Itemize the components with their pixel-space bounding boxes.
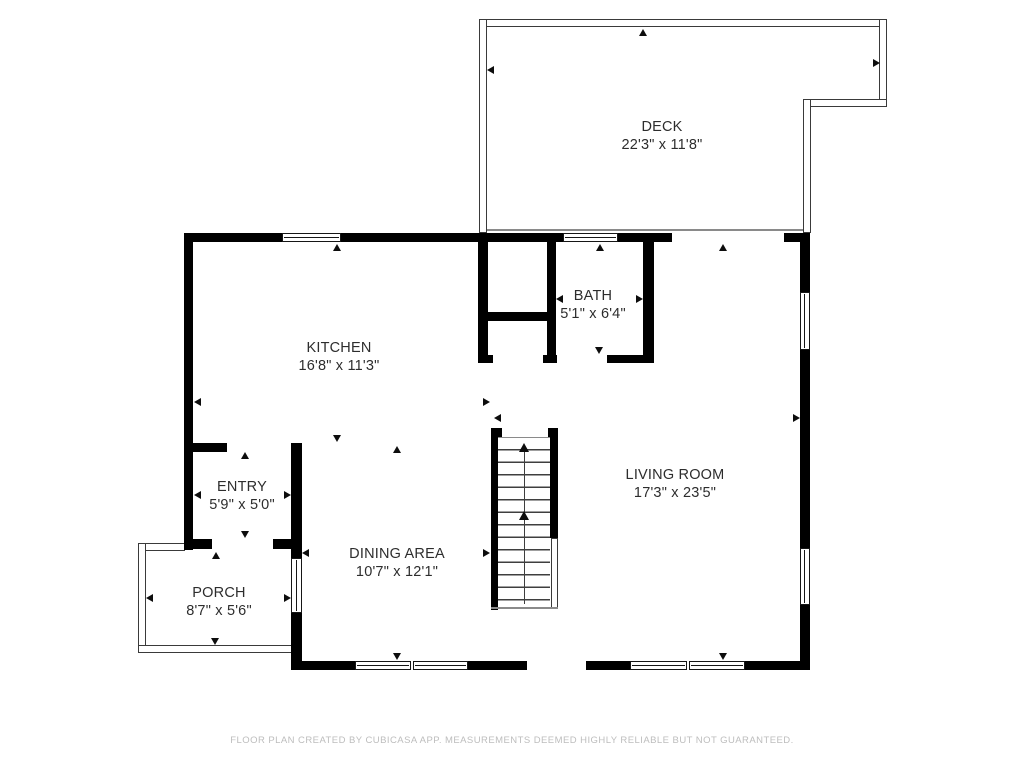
measure-arrow-right-icon [636, 295, 643, 303]
measure-arrow-up-icon [719, 244, 727, 251]
measure-arrow-left-icon [494, 414, 501, 422]
living-window-lower [800, 548, 810, 605]
room-dims: 22'3" x 11'8" [621, 136, 702, 154]
living-window-upper [800, 292, 810, 350]
wall-right-middle [800, 350, 810, 548]
wall-bottom-b [468, 661, 527, 670]
dining-bottom-window-1 [355, 661, 411, 670]
room-label-dining-area: DINING AREA 10'7" x 12'1" [349, 545, 445, 581]
deck-railing-right [879, 19, 887, 107]
entry-top-wall [193, 443, 227, 452]
room-name: BATH [560, 287, 626, 305]
wall-top-left [184, 233, 282, 242]
room-label-entry: ENTRY 5'9" x 5'0" [209, 478, 275, 514]
measure-arrow-up-icon [596, 244, 604, 251]
deck-railing-left [479, 19, 487, 233]
measure-arrow-up-icon [333, 244, 341, 251]
wall-bottom-d [745, 661, 810, 670]
bath-bottom-wall-b [543, 355, 557, 363]
room-label-porch: PORCH 8'7" x 5'6" [186, 584, 252, 620]
bath-window [563, 233, 618, 242]
measure-arrow-up-icon [212, 552, 220, 559]
bath-bottom-wall-c [607, 355, 654, 363]
wall-left [184, 233, 193, 550]
measure-arrow-left-icon [194, 491, 201, 499]
measure-arrow-right-icon [483, 549, 490, 557]
measure-arrow-right-icon [284, 491, 291, 499]
measure-arrow-down-icon [241, 531, 249, 538]
measure-arrow-down-icon [595, 347, 603, 354]
room-name: ENTRY [209, 478, 275, 496]
room-name: LIVING ROOM [626, 466, 725, 484]
room-name: PORCH [186, 584, 252, 602]
stairs-bottom-edge [491, 607, 558, 609]
entry-right-wall [291, 443, 302, 558]
bath-right-wall [643, 233, 654, 363]
wall-bottom-c [586, 661, 630, 670]
measure-arrow-down-icon [211, 638, 219, 645]
room-label-kitchen: KITCHEN 16'8" x 11'3" [298, 339, 379, 375]
wall-right-upper [800, 233, 810, 292]
room-dims: 8'7" x 5'6" [186, 602, 252, 620]
stairs-left-wall [491, 428, 498, 610]
dining-bottom-window-2 [413, 661, 468, 670]
measure-arrow-left-icon [302, 549, 309, 557]
measure-arrow-left-icon [194, 398, 201, 406]
stairs-right-wall [550, 428, 558, 538]
floor-plan-canvas: DECK 22'3" x 11'8" KITCHEN 16'8" x 11'3"… [0, 0, 1024, 768]
deck-railing-notch-bottom [803, 99, 887, 107]
stairs-up-arrow-icon [519, 443, 529, 452]
measure-arrow-down-icon [719, 653, 727, 660]
entry-bottom-wall-a [184, 539, 212, 549]
room-name: DINING AREA [349, 545, 445, 563]
room-label-deck: DECK 22'3" x 11'8" [621, 118, 702, 154]
deck-threshold-line [487, 229, 803, 231]
measure-arrow-up-icon [393, 446, 401, 453]
dining-side-window [291, 558, 302, 613]
dining-left-wall-lower [291, 613, 302, 670]
room-dims: 16'8" x 11'3" [298, 357, 379, 375]
measure-arrow-left-icon [146, 594, 153, 602]
porch-railing-bottom [138, 645, 294, 653]
closet-left-wall [478, 242, 488, 363]
measure-arrow-up-icon [241, 452, 249, 459]
closet-middle-wall [478, 312, 556, 321]
measure-arrow-left-icon [487, 66, 494, 74]
entry-bottom-wall-b [273, 539, 291, 549]
living-bottom-window-2 [689, 661, 745, 670]
bath-bottom-wall-a [478, 355, 493, 363]
room-dims: 17'3" x 23'5" [626, 484, 725, 502]
measure-arrow-right-icon [284, 594, 291, 602]
room-dims: 5'9" x 5'0" [209, 496, 275, 514]
living-bottom-window-1 [630, 661, 687, 670]
porch-railing-left [138, 543, 146, 653]
stairs-right-railing [551, 538, 558, 608]
measure-arrow-down-icon [393, 653, 401, 660]
measure-arrow-right-icon [873, 59, 880, 67]
room-dims: 10'7" x 12'1" [349, 563, 445, 581]
bath-left-wall [547, 242, 556, 363]
measure-arrow-right-icon [483, 398, 490, 406]
measure-arrow-right-icon [793, 414, 800, 422]
measure-arrow-down-icon [333, 435, 341, 442]
room-name: DECK [621, 118, 702, 136]
kitchen-window [282, 233, 341, 242]
room-dims: 5'1" x 6'4" [560, 305, 626, 323]
room-label-bath: BATH 5'1" x 6'4" [560, 287, 626, 323]
wall-top-middle [341, 233, 563, 242]
measure-arrow-up-icon [639, 29, 647, 36]
room-label-living-room: LIVING ROOM 17'3" x 23'5" [626, 466, 725, 502]
stairs-up-arrow-2-icon [519, 511, 529, 520]
room-name: KITCHEN [298, 339, 379, 357]
footer-disclaimer: FLOOR PLAN CREATED BY CUBICASA APP. MEAS… [0, 735, 1024, 746]
stairs-centerline [524, 450, 526, 604]
deck-railing-notch-left [803, 99, 811, 233]
deck-railing-top [479, 19, 887, 27]
